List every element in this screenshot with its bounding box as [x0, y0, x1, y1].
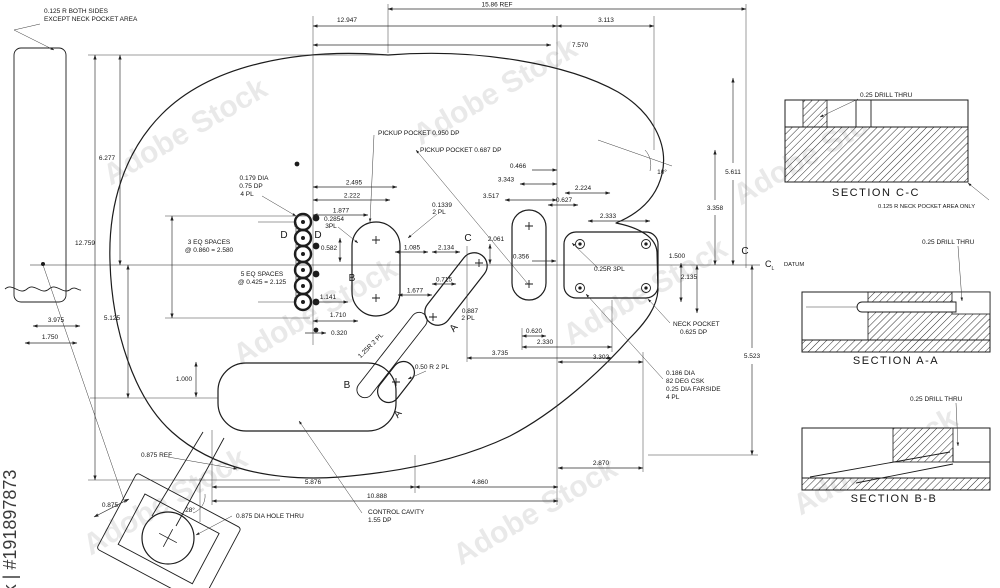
- radius-887-line1: 0.887: [462, 308, 479, 315]
- drill-note-aa: 0.25 DRILL THRU: [922, 239, 975, 246]
- radius-note-line2: EXCEPT NECK POCKET AREA: [44, 16, 138, 23]
- dim-0466: 0.466: [510, 163, 527, 170]
- ferrule-note-line3: 4 PL: [240, 191, 254, 198]
- dim-6277: 6.277: [99, 155, 116, 162]
- pickup-bridge-note: PICKUP POCKET 0.950 DP: [378, 130, 459, 137]
- drill-note-bb: 0.25 DRILL THRU: [910, 396, 963, 403]
- dim-5876: 5.876: [305, 479, 322, 486]
- section-aa-title: SECTION A-A: [853, 355, 939, 367]
- side-view-blank: [14, 48, 66, 302]
- csk-note-line1: 0.186 DIA: [666, 370, 696, 377]
- dim-1877: 1.877: [333, 208, 350, 215]
- dim-3302: 3.302: [593, 354, 610, 361]
- dim-3358: 3.358: [707, 205, 724, 212]
- dim-12759: 12.759: [75, 240, 95, 247]
- dim-2134: 2.134: [438, 245, 455, 252]
- angle-10: 10°: [657, 168, 667, 176]
- dim-1000: 1.000: [176, 376, 193, 383]
- section-letter-a: A: [448, 322, 461, 334]
- pickup-neck-note: PICKUP POCKET 0.687 DP: [420, 147, 501, 154]
- dim-1085: 1.085: [404, 245, 421, 252]
- eq5-note-line2: @ 0.425 = 2.125: [238, 279, 287, 286]
- dim-0620: 0.620: [526, 328, 543, 335]
- section-bb-title: SECTION B-B: [851, 493, 938, 505]
- watermark-tile: Adobe Stock: [448, 451, 624, 571]
- neck-pocket-radius-note: 0.125 R NECK POCKET AREA ONLY: [878, 204, 975, 210]
- angle-28: 28°: [185, 506, 195, 514]
- mount-hole: [313, 215, 320, 222]
- dim-12947: 12.947: [337, 17, 357, 24]
- dim-0582: 0.582: [321, 245, 338, 252]
- dim-2224: 2.224: [575, 185, 592, 192]
- dim-0715: 0.715: [436, 277, 453, 284]
- slanted-rout: [420, 248, 493, 331]
- radius-887-line2: 2 PL: [461, 315, 475, 322]
- control-cavity-note-line2: 1.55 DP: [368, 517, 392, 524]
- dim-2870: 2.870: [593, 460, 610, 467]
- dim-0875ref: 0.875 REF: [141, 452, 172, 459]
- dim-3517: 3.517: [483, 193, 500, 200]
- section-letter-d: D: [280, 230, 287, 241]
- control-cavity: [218, 363, 396, 431]
- section-aa: 0.25 DRILL THRU SECTION A-A: [802, 239, 990, 367]
- drawing-canvas: Adobe Stock Adobe Stock Adobe Stock Adob…: [0, 0, 1000, 588]
- control-cavity-note-line1: CONTROL CAVITY: [368, 509, 425, 516]
- ferrule-note-line1: 0.179 DIA: [240, 175, 270, 182]
- dim-3113: 3.113: [598, 17, 614, 24]
- section-letter-d: D: [314, 230, 321, 241]
- eq3-note-line1: 3 EQ SPACES: [188, 239, 231, 246]
- datum-l-symbol: L: [772, 266, 775, 272]
- dim-0320: 0.320: [331, 330, 348, 337]
- neck-pocket-note-line2: 0.625 DP: [680, 329, 707, 336]
- csk-note-line2: 82 DEG CSK: [666, 378, 705, 385]
- dim-3975: 3.975: [48, 317, 65, 324]
- dim-7570: 7.570: [572, 42, 589, 49]
- dim-overall-length: 15.86 REF: [481, 2, 512, 9]
- section-letter-a: A: [392, 408, 405, 420]
- dim-0627: 0.627: [556, 197, 573, 204]
- stock-id-watermark: Adobe Stock | #191897873: [0, 470, 20, 588]
- eq5-note-line1: 5 EQ SPACES: [241, 271, 284, 278]
- radius-2854-line2: 3PL: [325, 223, 337, 230]
- dim-1677: 1.677: [407, 288, 424, 295]
- dim-2135: 2.135: [681, 274, 698, 281]
- dim-2330: 2.330: [537, 339, 554, 346]
- csk-note-line3: 0.25 DIA FARSIDE: [666, 386, 721, 393]
- ferrule-note-line2: 0.75 DP: [239, 183, 263, 190]
- mount-hole: [313, 243, 320, 250]
- radius-note-line1: 0.125 R BOTH SIDES: [44, 8, 109, 15]
- section-letter-c: C: [464, 233, 471, 244]
- switch-radius-note: 0.50 R 2 PL: [415, 364, 450, 371]
- break-line: [5, 287, 81, 291]
- mount-hole: [313, 271, 320, 278]
- dim-4860: 4.860: [472, 479, 489, 486]
- dim-5523: 5.523: [744, 353, 761, 360]
- section-letter-b: B: [344, 380, 351, 391]
- csk-note-line4: 4 PL: [666, 394, 680, 401]
- watermark-tile: Adobe Stock: [228, 251, 404, 371]
- eq3-note-line2: @ 0.860 = 2.580: [185, 247, 234, 254]
- dim-2495: 2.495: [346, 180, 363, 187]
- dim-0875: 0.875: [102, 502, 119, 509]
- neck-pocket-note-line1: NECK POCKET: [673, 321, 720, 328]
- dim-10888: 10.888: [367, 493, 387, 500]
- section-letter-c: C: [741, 246, 748, 257]
- dim-0356: 0.356: [513, 254, 530, 261]
- section-letter-b: B: [349, 273, 356, 284]
- dim-5125: 5.125: [104, 315, 121, 322]
- datum-label: DATUM: [784, 262, 804, 268]
- dim-3343: 3.343: [498, 177, 515, 184]
- drill-note-cc: 0.25 DRILL THRU: [860, 92, 913, 99]
- corner-radius-note: 0.25R 3PL: [594, 266, 625, 273]
- dim-3735: 3.735: [492, 350, 509, 357]
- section-bb: 0.25 DRILL THRU SECTION B-B: [802, 396, 990, 505]
- radius-1339-line1: 0.1339: [432, 202, 452, 209]
- section-cc: 0.25 DRILL THRU SECTION C-C 0.125 R NECK…: [785, 92, 989, 210]
- radius-1339-line2: 2 PL: [432, 209, 446, 216]
- dim-1500: 1.500: [669, 253, 686, 260]
- radius-2854-line1: 0.2854: [324, 216, 344, 223]
- dim-2222: 2.222: [344, 193, 361, 200]
- dim-2061: 2.061: [488, 236, 505, 243]
- jack-hole-note: 0.875 DIA HOLE THRU: [236, 513, 304, 520]
- dim-1750: 1.750: [42, 334, 59, 341]
- dim-2333: 2.333: [600, 213, 617, 220]
- guitar-body-blueprint: Adobe Stock Adobe Stock Adobe Stock Adob…: [0, 0, 1000, 588]
- dim-5611: 5.611: [725, 169, 741, 176]
- section-cc-title: SECTION C-C: [832, 187, 920, 199]
- dim-1710: 1.710: [330, 312, 347, 319]
- angle-arc: [645, 150, 651, 171]
- dim-1141: 1.141: [320, 294, 337, 301]
